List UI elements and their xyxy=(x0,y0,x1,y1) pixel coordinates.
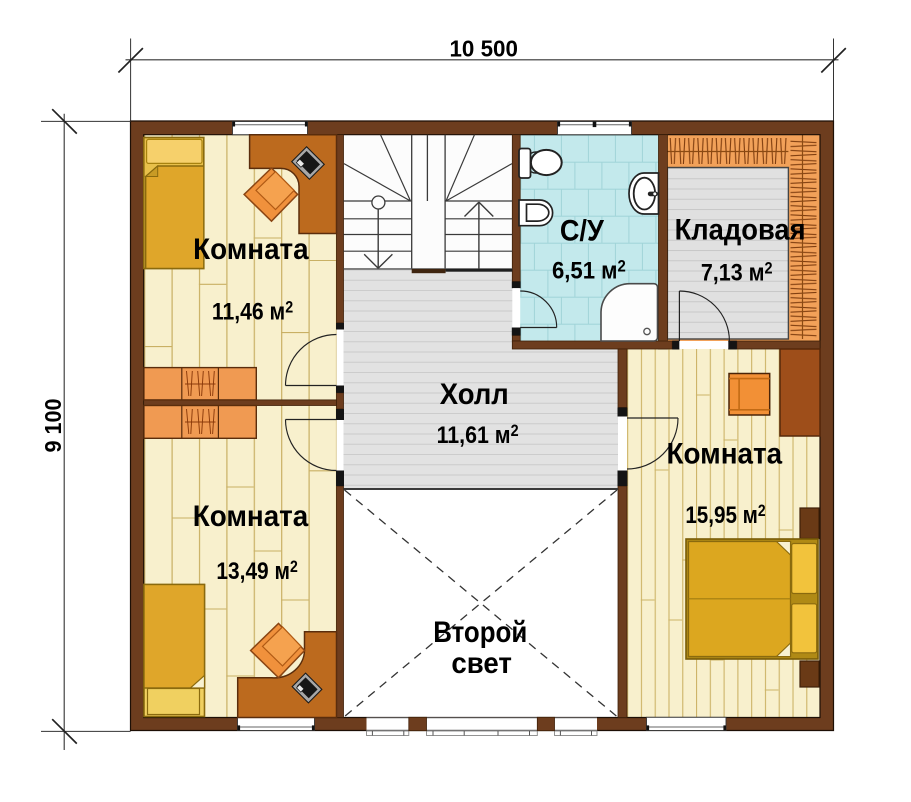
svg-text:9 100: 9 100 xyxy=(40,399,66,453)
svg-text:Комната: Комната xyxy=(667,438,783,471)
svg-text:Холл: Холл xyxy=(440,378,509,411)
svg-text:7,13 м2: 7,13 м2 xyxy=(701,260,773,287)
svg-text:Кладовая: Кладовая xyxy=(675,213,806,246)
svg-text:11,46 м2: 11,46 м2 xyxy=(212,299,293,326)
svg-text:С/У: С/У xyxy=(560,215,604,248)
svg-text:15,95 м2: 15,95 м2 xyxy=(685,502,765,529)
svg-text:свет: свет xyxy=(451,647,512,680)
svg-text:13,49 м2: 13,49 м2 xyxy=(216,558,297,585)
svg-text:Второй: Второй xyxy=(433,616,527,649)
svg-text:6,51 м2: 6,51 м2 xyxy=(552,258,626,285)
svg-text:Комната: Комната xyxy=(193,500,309,533)
svg-text:Комната: Комната xyxy=(193,233,309,266)
svg-text:10 500: 10 500 xyxy=(450,36,518,62)
svg-text:11,61 м2: 11,61 м2 xyxy=(437,422,519,449)
